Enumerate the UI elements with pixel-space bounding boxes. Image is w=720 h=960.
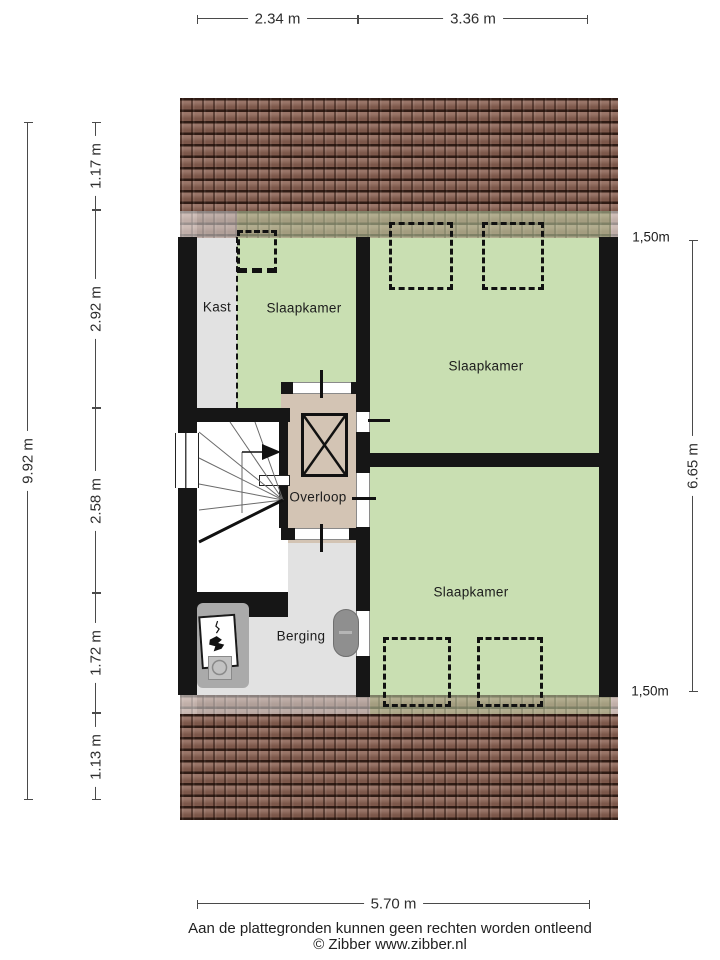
wall-stair-divider	[279, 422, 288, 477]
footer-copyright: © Zibber www.zibber.nl	[60, 936, 720, 953]
room-label-overloop: Overloop	[289, 490, 346, 505]
roof-window-icon	[389, 222, 453, 290]
roof-window-icon	[477, 637, 543, 707]
door-tick	[320, 370, 323, 398]
wall-stair-divider	[279, 486, 288, 528]
room-label-berging: Berging	[277, 629, 326, 644]
floor-plan-page: Kast Slaapkamer Slaapkamer Slaapkamer Ov…	[0, 0, 720, 960]
wall-overloop-top	[281, 382, 293, 394]
boiler-pump	[208, 656, 232, 680]
dimension-left-4: 1.72 m	[95, 593, 96, 713]
door-opening	[356, 412, 370, 432]
wall-mid	[356, 432, 370, 473]
door-leaf	[333, 609, 359, 657]
room-label-kast: Kast	[203, 300, 231, 315]
dimension-left-2: 2.92 m	[95, 210, 96, 408]
door-tick	[320, 524, 323, 552]
dimension-left-total: 9.92 m	[27, 122, 28, 800]
door-handle-icon	[339, 631, 352, 634]
dimension-right-total: 6.65 m	[692, 240, 693, 692]
door-opening	[356, 473, 370, 527]
chimney-x-icon	[304, 416, 345, 474]
door-tick	[368, 419, 390, 422]
room-label-slaapkamer2: Slaapkamer	[448, 359, 523, 374]
clearance-label-top: 1,50m	[632, 230, 670, 245]
room-label-slaapkamer1: Slaapkamer	[266, 301, 341, 316]
chimney-shaft	[301, 413, 348, 477]
wall-stair-top	[178, 408, 290, 422]
footer-disclaimer: Aan de plattegronden kunnen geen rechten…	[60, 920, 720, 937]
kast-partition-dashed-line	[236, 237, 238, 408]
wall-overloop-bottom	[281, 528, 295, 540]
roof-top	[180, 98, 618, 211]
wall-right	[599, 237, 618, 697]
dimension-left-3: 2.58 m	[95, 408, 96, 593]
roof-bottom	[180, 714, 618, 820]
door-tick	[352, 497, 376, 500]
stair-handrail	[259, 475, 290, 486]
wall-bed2-bed3	[370, 453, 618, 467]
roof-window-icon	[383, 637, 451, 707]
window-icon	[175, 433, 199, 488]
wall-overloop-top	[351, 382, 370, 394]
room-label-slaapkamer3: Slaapkamer	[433, 585, 508, 600]
clearance-label-bottom: 1,50m	[631, 684, 669, 699]
wall-overloop-bottom	[349, 528, 370, 540]
wall-mid	[356, 656, 370, 697]
roof-window-icon	[482, 222, 544, 290]
dimension-left-1: 1.17 m	[95, 122, 96, 210]
dimension-bottom: 5.70 m	[197, 903, 590, 904]
dimension-top-2: 3.36 m	[358, 18, 588, 19]
dimension-top-1: 2.34 m	[197, 18, 358, 19]
stairwell-floor	[197, 410, 288, 592]
roof-window-icon	[237, 230, 277, 273]
dimension-left-5: 1.13 m	[95, 713, 96, 800]
